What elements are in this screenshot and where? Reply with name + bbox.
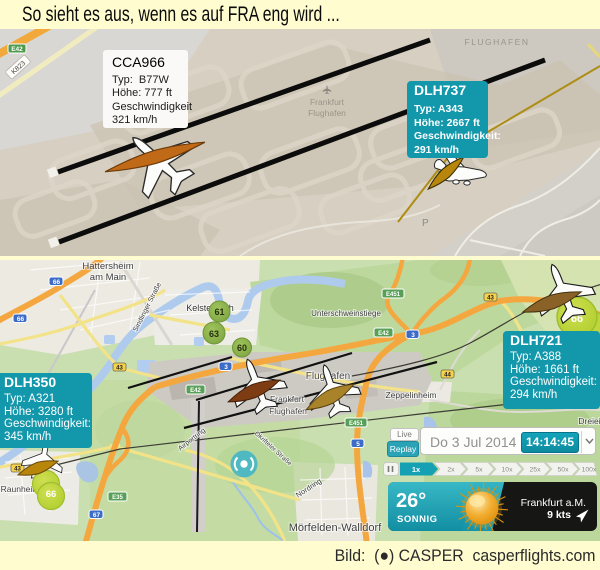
svg-text:Frankfurt: Frankfurt — [310, 97, 345, 107]
svg-text:25x: 25x — [530, 467, 542, 474]
svg-text:Dreieich: Dreieich — [578, 416, 600, 426]
svg-text:3: 3 — [411, 332, 415, 339]
svg-text:66: 66 — [17, 316, 25, 323]
svg-text:E42: E42 — [11, 46, 23, 53]
svg-text:5: 5 — [356, 441, 360, 448]
svg-text:E451: E451 — [349, 421, 364, 427]
svg-text:43: 43 — [14, 467, 21, 473]
svg-text:E451: E451 — [386, 292, 401, 298]
svg-text:43: 43 — [487, 296, 494, 302]
svg-text:5x: 5x — [475, 467, 483, 474]
svg-text:63: 63 — [209, 329, 219, 339]
svg-text:2x: 2x — [447, 467, 455, 474]
svg-text:E42: E42 — [378, 331, 389, 337]
svg-text:100x: 100x — [582, 467, 597, 474]
svg-text:44: 44 — [444, 373, 451, 379]
svg-text:Flughafen: Flughafen — [269, 406, 307, 416]
svg-text:Zeppelinheim: Zeppelinheim — [385, 390, 436, 400]
svg-text:60: 60 — [237, 343, 247, 353]
svg-text:P: P — [422, 218, 429, 229]
svg-text:10x: 10x — [502, 467, 514, 474]
svg-text:E42: E42 — [190, 388, 201, 394]
svg-text:Mörfelden-Walldorf: Mörfelden-Walldorf — [289, 522, 382, 534]
svg-text:Hattersheim: Hattersheim — [82, 261, 133, 272]
svg-text:FLUGHAFEN: FLUGHAFEN — [465, 37, 530, 47]
svg-text:Flughafen: Flughafen — [308, 108, 346, 118]
svg-text:61: 61 — [214, 307, 224, 317]
svg-text:3: 3 — [224, 364, 228, 371]
svg-text:am Main: am Main — [90, 272, 126, 283]
svg-text:66: 66 — [46, 489, 57, 500]
svg-text:43: 43 — [116, 366, 123, 372]
svg-text:Unterschweinstiege: Unterschweinstiege — [311, 309, 381, 318]
svg-text:E35: E35 — [112, 495, 123, 501]
svg-text:50x: 50x — [558, 467, 570, 474]
svg-text:66: 66 — [53, 279, 61, 286]
svg-text:67: 67 — [93, 512, 101, 519]
svg-text:1x: 1x — [412, 465, 421, 474]
